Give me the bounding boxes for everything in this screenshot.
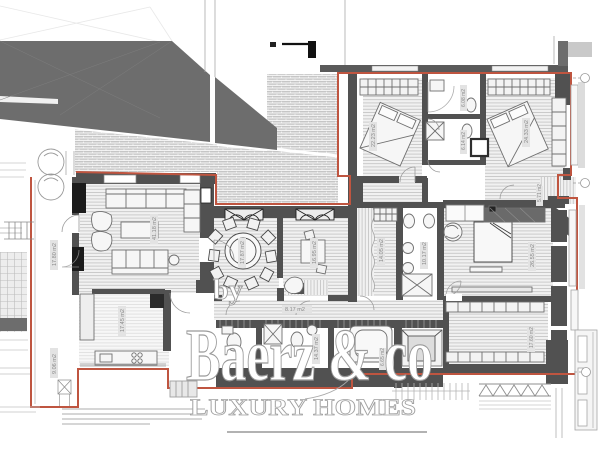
svg-text:LUXURY HOMES: LUXURY HOMES (190, 395, 416, 420)
svg-text:17.87 m2: 17.87 m2 (240, 241, 246, 264)
svg-text:10.17 m2: 10.17 m2 (422, 242, 428, 265)
svg-text:Baerz & co: Baerz & co (186, 315, 433, 397)
svg-text:17.45 m2: 17.45 m2 (120, 309, 126, 332)
svg-text:5.71 m2: 5.71 m2 (537, 184, 543, 202)
svg-text:14.05 m2: 14.05 m2 (379, 239, 385, 262)
svg-text:24.33 m2: 24.33 m2 (524, 120, 530, 143)
svg-text:8.17 m2: 8.17 m2 (285, 307, 305, 313)
svg-text:17.80 m2: 17.80 m2 (52, 243, 58, 266)
svg-text:6.08 m2: 6.08 m2 (461, 89, 467, 107)
svg-text:9.06 m2: 9.06 m2 (52, 354, 58, 374)
svg-text:16.95 m2: 16.95 m2 (312, 241, 318, 264)
svg-text:by: by (213, 275, 243, 306)
svg-text:22.23 m2: 22.23 m2 (371, 124, 377, 147)
svg-text:6.14 m2: 6.14 m2 (461, 132, 467, 150)
svg-text:17.60 m2: 17.60 m2 (529, 327, 535, 348)
svg-text:41.18 m2: 41.18 m2 (152, 217, 158, 240)
svg-text:26.55 m2: 26.55 m2 (530, 244, 536, 267)
